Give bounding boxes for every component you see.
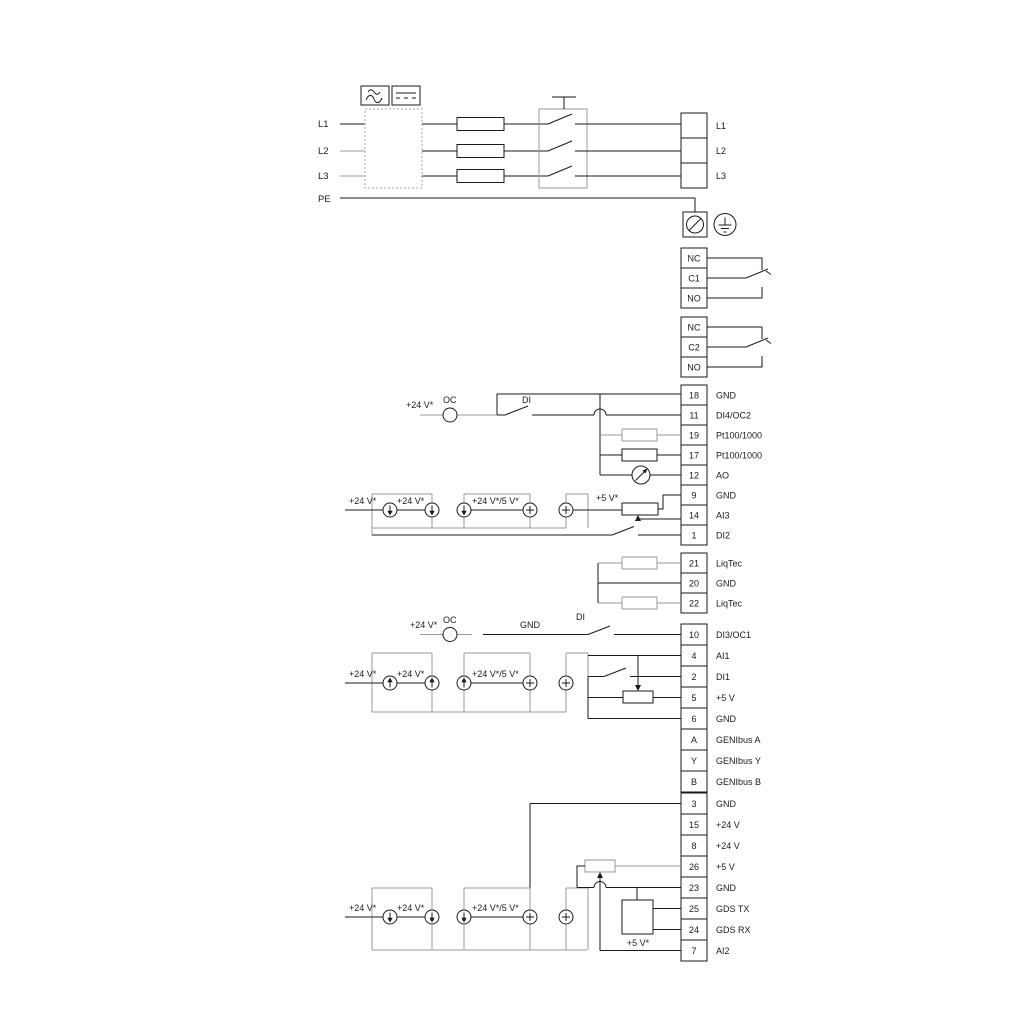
- plus24-label-ai2-2: +24 V*: [397, 903, 425, 913]
- wiring-diagram: L1 L2 L3 PE: [0, 0, 1024, 1024]
- current-source-up-icon: [425, 676, 439, 690]
- terminal-cell-power_out-L2: [681, 138, 707, 163]
- ai3-potentiometer: [622, 503, 658, 515]
- strip1-block: 18GND11DI4/OC219Pt100/100017Pt100/100012…: [681, 385, 762, 545]
- terminal-number-18: 18: [689, 391, 699, 401]
- terminal-number-7: 7: [691, 946, 696, 956]
- relay-2-block: NCC2NO: [681, 317, 707, 377]
- terminal-number-15: 15: [689, 820, 699, 830]
- plus24-label-ai3-1: +24 V*: [349, 496, 377, 506]
- terminal-label-gnd: GND: [716, 799, 737, 809]
- wiring-diagram-page: L1 L2 L3 PE: [0, 0, 1024, 1024]
- strip1-section: 18GND11DI4/OC219Pt100/100017Pt100/100012…: [345, 385, 762, 545]
- wire-pe: [340, 198, 695, 212]
- di3-switch-blade: [588, 626, 610, 635]
- terminal-number-25: 25: [689, 904, 699, 914]
- filter-box: [365, 109, 422, 188]
- line-l2-label: L2: [318, 146, 329, 157]
- di1-switch-blade: [604, 668, 626, 677]
- terminal-number-B: B: [691, 777, 697, 787]
- line-l1-label: L1: [318, 119, 329, 130]
- ai3-wiper-arrow: [635, 515, 641, 521]
- relay-1-section: NCC1NO: [681, 248, 771, 308]
- relay2-blade-tick: [766, 340, 771, 344]
- ai1-option-chain: +24 V* +24 V* +24 V*/5 V*: [345, 653, 588, 712]
- terminal-cell-power_out-L3: [681, 163, 707, 188]
- terminal-number-17: 17: [689, 451, 699, 461]
- terminal-label-di1: DI1: [716, 672, 730, 682]
- terminal-label-ai3: AI3: [716, 511, 730, 521]
- ac-symbol-box: [361, 86, 389, 105]
- ai3-option-chain: +24 V* +24 V* +24 V*/5 V* +5 V*: [345, 493, 681, 535]
- plus24-label-ai1-2: +24 V*: [397, 669, 425, 679]
- line-pe-label: PE: [318, 194, 331, 205]
- terminal-label-pt100-1000: Pt100/1000: [716, 431, 762, 441]
- plus5-label-gds: +5 V*: [627, 938, 650, 948]
- liqtec21-sensor-resistor: [622, 557, 657, 569]
- ao-meter-symbol: [632, 466, 650, 484]
- terminal-label-gds-tx: GDS TX: [716, 904, 749, 914]
- terminal-label-ai1: AI1: [716, 651, 730, 661]
- terminal-label-genibus-b: GENIbus B: [716, 777, 761, 787]
- terminal-label-ai2: AI2: [716, 946, 730, 956]
- strip4-section: 3GND15+24 V8+24 V26+5 V23GND25GDS TX24GD…: [345, 793, 751, 961]
- terminal-label-liqtec: LiqTec: [716, 559, 743, 569]
- terminal-number-NO: NO: [687, 294, 701, 304]
- plus24or5-label-ai2: +24 V*/5 V*: [472, 903, 519, 913]
- voltage-source-icon: [559, 910, 573, 924]
- terminal-number-24: 24: [689, 925, 699, 935]
- terminal-number-Y: Y: [691, 756, 697, 766]
- terminal-label-genibus-y: GENIbus Y: [716, 756, 761, 766]
- terminal-number-1: 1: [691, 531, 696, 541]
- terminal-label-genibus-a: GENIbus A: [716, 735, 761, 745]
- terminal-number-A: A: [691, 735, 697, 745]
- strip4-block: 3GND15+24 V8+24 V26+5 V23GND25GDS TX24GD…: [681, 793, 751, 961]
- wires-fuses-to-contactor: [504, 124, 548, 176]
- terminal-label-l1: L1: [716, 121, 726, 131]
- current-source-down-icon: [383, 910, 397, 924]
- oc-label-r10: OC: [443, 615, 457, 625]
- terminal-number-6: 6: [691, 714, 696, 724]
- terminal-number-21: 21: [689, 559, 699, 569]
- pt100-19-resistor: [622, 429, 657, 441]
- terminal-label-di4-oc2: DI4/OC2: [716, 411, 751, 421]
- current-source-up-icon: [457, 676, 471, 690]
- voltage-source-icon: [523, 503, 537, 517]
- fuse-l3: [457, 170, 504, 183]
- wires-to-power-block: [575, 124, 681, 176]
- terminal-number-20: 20: [689, 579, 699, 589]
- voltage-source-icon: [559, 676, 573, 690]
- strip3-section: 10DI3/OC14AI12DI15+5 V6GNDAGENIbus AYGEN…: [345, 612, 761, 792]
- relay2-contact-blade: [746, 338, 768, 347]
- gnd-label-r10: GND: [520, 620, 541, 630]
- power-input-section: L1 L2 L3 PE: [318, 86, 736, 237]
- power-terminal-block: L1L2L3: [681, 113, 726, 188]
- terminal-label-gds-rx: GDS RX: [716, 925, 751, 935]
- relay-1-block: NCC1NO: [681, 248, 707, 308]
- di4-wire: [532, 409, 681, 415]
- terminal-label-l3: L3: [716, 171, 726, 181]
- terminal-number-14: 14: [689, 511, 699, 521]
- terminal-label--5-v: +5 V: [716, 693, 735, 703]
- current-source-up-icon: [383, 676, 397, 690]
- terminal-number-3: 3: [691, 799, 696, 809]
- liqtec22-sensor-resistor: [622, 597, 657, 609]
- terminal-number-23: 23: [689, 883, 699, 893]
- plus24-label-ai3-2: +24 V*: [397, 496, 425, 506]
- current-source-down-icon: [457, 503, 471, 517]
- terminal-number-11: 11: [689, 411, 698, 421]
- liqtec-section: 21LiqTec20GND22LiqTec: [598, 553, 743, 613]
- pot-left-bracket: [577, 866, 585, 888]
- terminal-number-2: 2: [691, 672, 696, 682]
- gnd23-wire: [577, 882, 681, 888]
- terminal-label-liqtec: LiqTec: [716, 599, 743, 609]
- open-collector-symbol-r10: [443, 628, 457, 642]
- ai2-option-frames: [372, 888, 588, 950]
- open-collector-symbol-r11: [443, 408, 457, 422]
- relay1-nc-wire: [707, 258, 762, 270]
- terminal-number-10: 10: [689, 630, 699, 640]
- relay-2-section: NCC2NO: [681, 317, 771, 377]
- oc-label-r11: OC: [443, 395, 457, 405]
- terminal-label-gnd: GND: [716, 579, 737, 589]
- terminal-label--24-v: +24 V: [716, 841, 740, 851]
- relay1-blade-tick: [766, 271, 771, 275]
- ai3-pot-to-gnd9: [658, 495, 681, 509]
- terminal-number-NC: NC: [688, 254, 701, 264]
- current-source-down-icon: [383, 503, 397, 517]
- relay2-nc-wire: [707, 327, 762, 339]
- terminal-number-5: 5: [691, 693, 696, 703]
- voltage-source-icon: [559, 503, 573, 517]
- terminal-label-gnd: GND: [716, 883, 737, 893]
- terminal-number-22: 22: [689, 599, 699, 609]
- terminal-label--24-v: +24 V: [716, 820, 740, 830]
- plus24or5-label-ai1: +24 V*/5 V*: [472, 669, 519, 679]
- pt100-17-resistor: [622, 449, 657, 461]
- plus24-label-r10: +24 V*: [410, 620, 438, 630]
- wires-filter-to-fuses: [422, 124, 457, 176]
- di4-switch-blade: [505, 406, 528, 415]
- pe-terminal: [683, 212, 707, 237]
- terminal-cell-power_out-L1: [681, 113, 707, 138]
- terminal-label-gnd: GND: [716, 714, 737, 724]
- terminal-label-gnd: GND: [716, 391, 737, 401]
- fuse-l2: [457, 145, 504, 158]
- plus24-label-ai2-1: +24 V*: [349, 903, 377, 913]
- terminal-label-l2: L2: [716, 146, 726, 156]
- terminal-number-9: 9: [691, 491, 696, 501]
- current-source-down-icon: [457, 910, 471, 924]
- di-label-r10: DI: [576, 612, 585, 622]
- terminal-label-di3-oc1: DI3/OC1: [716, 630, 751, 640]
- di2-switch-blade: [612, 527, 634, 536]
- ai2-option-chain: +24 V* +24 V* +24 V*/5 V*: [345, 888, 588, 950]
- terminal-number-26: 26: [689, 862, 699, 872]
- ai2-potentiometer: [585, 860, 615, 872]
- ai2-wiper-arrow: [597, 872, 603, 878]
- plus24-label-ai1-1: +24 V*: [349, 669, 377, 679]
- ai1-potentiometer: [623, 691, 653, 703]
- terminal-label--5-v: +5 V: [716, 862, 735, 872]
- di-label-r11: DI: [522, 395, 531, 405]
- terminal-number-12: 12: [689, 471, 699, 481]
- voltage-source-icon: [523, 910, 537, 924]
- terminal-label-di2: DI2: [716, 531, 730, 541]
- terminal-number-NC: NC: [688, 323, 701, 333]
- terminal-number-8: 8: [691, 841, 696, 851]
- terminal-number-4: 4: [691, 651, 696, 661]
- strip2-block: 21LiqTec20GND22LiqTec: [681, 553, 743, 613]
- terminal-label-gnd: GND: [716, 491, 737, 501]
- line-l3-label: L3: [318, 171, 329, 182]
- relay1-contact-blade: [746, 269, 768, 278]
- relay2-no-wire: [707, 356, 762, 367]
- earth-symbol: [714, 214, 736, 236]
- terminal-label-ao: AO: [716, 471, 729, 481]
- terminal-number-C1: C1: [688, 274, 700, 284]
- ai1-wiper-arrow: [635, 685, 641, 691]
- main-switch: [539, 97, 587, 188]
- fuse-l1: [457, 118, 504, 131]
- relay1-no-wire: [707, 287, 762, 298]
- plus24or5-label-ai3: +24 V*/5 V*: [472, 496, 519, 506]
- voltage-source-icon: [523, 676, 537, 690]
- gds-sensor-box: [622, 900, 653, 934]
- plus24-label-r11: +24 V*: [406, 400, 434, 410]
- current-source-down-icon: [425, 503, 439, 517]
- terminal-number-19: 19: [689, 431, 699, 441]
- terminal-number-C2: C2: [688, 343, 700, 353]
- strip3-block: 10DI3/OC14AI12DI15+5 V6GNDAGENIbus AYGEN…: [681, 624, 761, 792]
- terminal-number-NO: NO: [687, 363, 701, 373]
- dc-symbol-box: [392, 86, 420, 105]
- current-source-down-icon: [425, 910, 439, 924]
- plus5-label-ai3: +5 V*: [596, 493, 619, 503]
- terminal-label-pt100-1000: Pt100/1000: [716, 451, 762, 461]
